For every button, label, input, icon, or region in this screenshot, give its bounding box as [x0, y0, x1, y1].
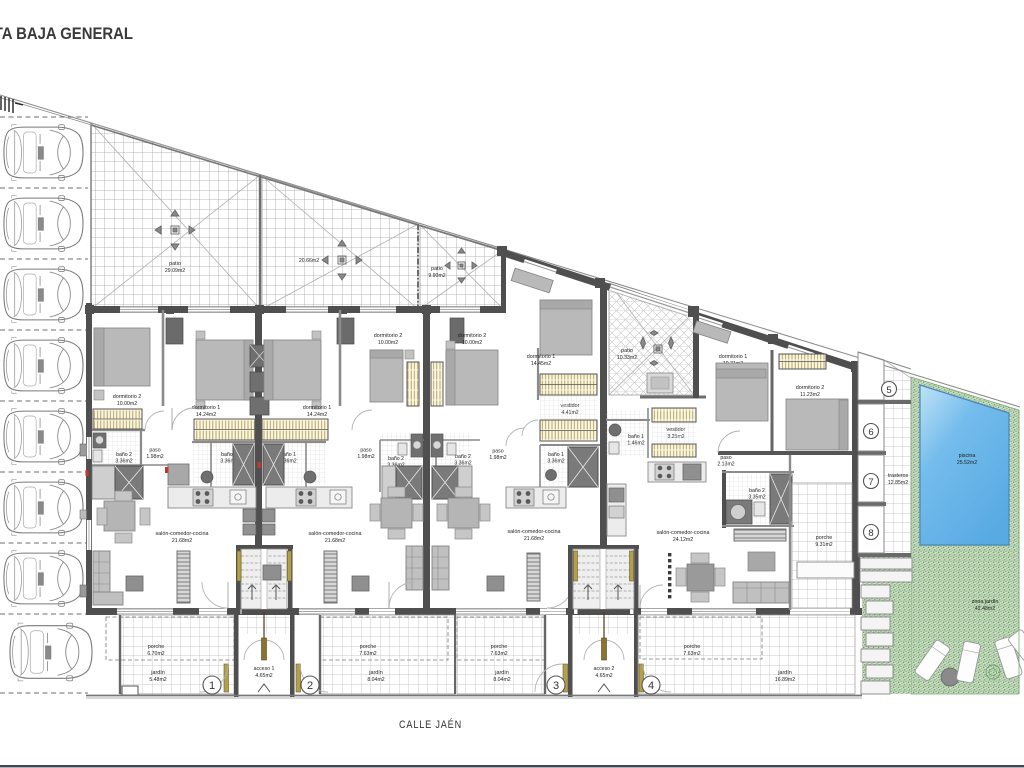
- svg-text:2.13m2: 2.13m2: [717, 462, 734, 468]
- svg-text:jardín: jardín: [368, 670, 383, 676]
- svg-text:3: 3: [553, 680, 559, 692]
- svg-text:jardín: jardín: [777, 670, 792, 676]
- svg-text:7.63m2: 7.63m2: [683, 651, 700, 657]
- svg-text:baño 2: baño 2: [455, 454, 471, 460]
- svg-text:12.85m2: 12.85m2: [888, 480, 908, 486]
- svg-text:29.09m2: 29.09m2: [165, 268, 185, 274]
- svg-text:acceso 2: acceso 2: [594, 666, 615, 672]
- svg-text:NTA BAJA GENERAL: NTA BAJA GENERAL: [0, 25, 133, 43]
- svg-text:acceso 1: acceso 1: [254, 666, 275, 672]
- svg-text:paso: paso: [720, 455, 731, 461]
- svg-text:salón-comedor-cocina: salón-comedor-cocina: [507, 529, 560, 535]
- svg-text:3.36m2: 3.36m2: [547, 459, 564, 465]
- svg-text:9.31m2: 9.31m2: [815, 542, 832, 548]
- svg-text:paso: paso: [360, 448, 371, 454]
- svg-text:7: 7: [868, 477, 873, 488]
- svg-text:dormitorio 1: dormitorio 1: [527, 354, 555, 360]
- svg-text:25.52m2: 25.52m2: [957, 460, 977, 466]
- svg-text:dormitorio 2: dormitorio 2: [796, 385, 824, 391]
- svg-text:patio: patio: [431, 266, 443, 272]
- svg-text:4.65m2: 4.65m2: [595, 673, 612, 679]
- svg-text:4.65m2: 4.65m2: [255, 673, 272, 679]
- svg-text:salón-comedor-cocina: salón-comedor-cocina: [155, 531, 208, 537]
- svg-text:baño 2: baño 2: [749, 488, 765, 494]
- svg-text:14.24m2: 14.24m2: [307, 412, 327, 418]
- svg-text:9.90m2: 9.90m2: [428, 273, 445, 279]
- svg-text:20.66m2: 20.66m2: [299, 258, 319, 264]
- svg-text:dormitorio 1: dormitorio 1: [192, 405, 220, 411]
- svg-text:baño 1: baño 1: [628, 434, 644, 440]
- svg-text:piscina: piscina: [959, 453, 976, 459]
- svg-text:dormitorio 1: dormitorio 1: [303, 405, 331, 411]
- svg-text:1.98m2: 1.98m2: [489, 455, 506, 461]
- svg-text:7.63m2: 7.63m2: [359, 651, 376, 657]
- svg-text:dormitorio 2: dormitorio 2: [458, 333, 486, 339]
- svg-text:14.24m2: 14.24m2: [196, 412, 216, 418]
- svg-text:11.23m2: 11.23m2: [800, 392, 820, 398]
- svg-text:21.68m2: 21.68m2: [172, 538, 192, 544]
- svg-text:1.98m2: 1.98m2: [146, 454, 163, 460]
- svg-text:4: 4: [648, 680, 654, 692]
- svg-text:dormitorio 2: dormitorio 2: [374, 333, 402, 339]
- svg-text:10.33m2: 10.33m2: [617, 355, 637, 361]
- svg-text:dormitorio 1: dormitorio 1: [719, 354, 747, 360]
- svg-text:24.12m2: 24.12m2: [673, 537, 693, 543]
- svg-text:baño 1: baño 1: [548, 452, 564, 458]
- svg-text:dormitorio 2: dormitorio 2: [113, 394, 141, 400]
- svg-text:trasteros: trasteros: [888, 473, 909, 479]
- svg-text:CALLE JAÉN: CALLE JAÉN: [399, 718, 462, 731]
- svg-text:10.00m2: 10.00m2: [462, 340, 482, 346]
- svg-text:patio: patio: [169, 261, 181, 267]
- svg-text:jardín: jardín: [150, 670, 165, 676]
- svg-text:porche: porche: [491, 644, 507, 650]
- svg-text:16.89m2: 16.89m2: [775, 677, 795, 683]
- svg-text:8.04m2: 8.04m2: [367, 677, 384, 683]
- svg-text:1.46m2: 1.46m2: [627, 441, 644, 447]
- svg-text:5.48m2: 5.48m2: [149, 677, 166, 683]
- svg-text:1: 1: [209, 680, 215, 692]
- svg-text:baño 2: baño 2: [388, 456, 404, 462]
- svg-text:porche: porche: [816, 535, 832, 541]
- svg-text:1.98m2: 1.98m2: [357, 454, 374, 460]
- svg-text:jardín: jardín: [494, 670, 509, 676]
- svg-text:salón-comedor-cocina: salón-comedor-cocina: [656, 530, 709, 536]
- svg-text:6: 6: [868, 427, 873, 438]
- svg-text:8: 8: [868, 528, 873, 539]
- svg-text:5: 5: [886, 385, 891, 396]
- svg-text:3.36m2: 3.36m2: [115, 459, 132, 465]
- svg-text:porche: porche: [148, 644, 164, 650]
- svg-text:2: 2: [307, 680, 313, 692]
- svg-text:paso: paso: [492, 449, 503, 455]
- svg-text:6.70m2: 6.70m2: [147, 651, 164, 657]
- svg-text:14.45m2: 14.45m2: [531, 361, 551, 367]
- svg-text:porche: porche: [360, 644, 376, 650]
- svg-text:10.00m2: 10.00m2: [117, 401, 137, 407]
- svg-text:10.00m2: 10.00m2: [378, 340, 398, 346]
- svg-text:7.63m2: 7.63m2: [490, 651, 507, 657]
- svg-text:42.48m2: 42.48m2: [975, 606, 995, 612]
- svg-text:baño 2: baño 2: [116, 452, 132, 458]
- svg-text:salón-comedor-cocina: salón-comedor-cocina: [308, 531, 361, 537]
- svg-text:patio: patio: [621, 348, 633, 354]
- svg-text:8.04m2: 8.04m2: [493, 677, 510, 683]
- svg-text:21.68m2: 21.68m2: [524, 536, 544, 542]
- svg-text:21.68m2: 21.68m2: [325, 538, 345, 544]
- svg-text:zona jardín: zona jardín: [972, 599, 999, 605]
- svg-text:paso: paso: [149, 448, 160, 454]
- svg-text:porche: porche: [684, 644, 700, 650]
